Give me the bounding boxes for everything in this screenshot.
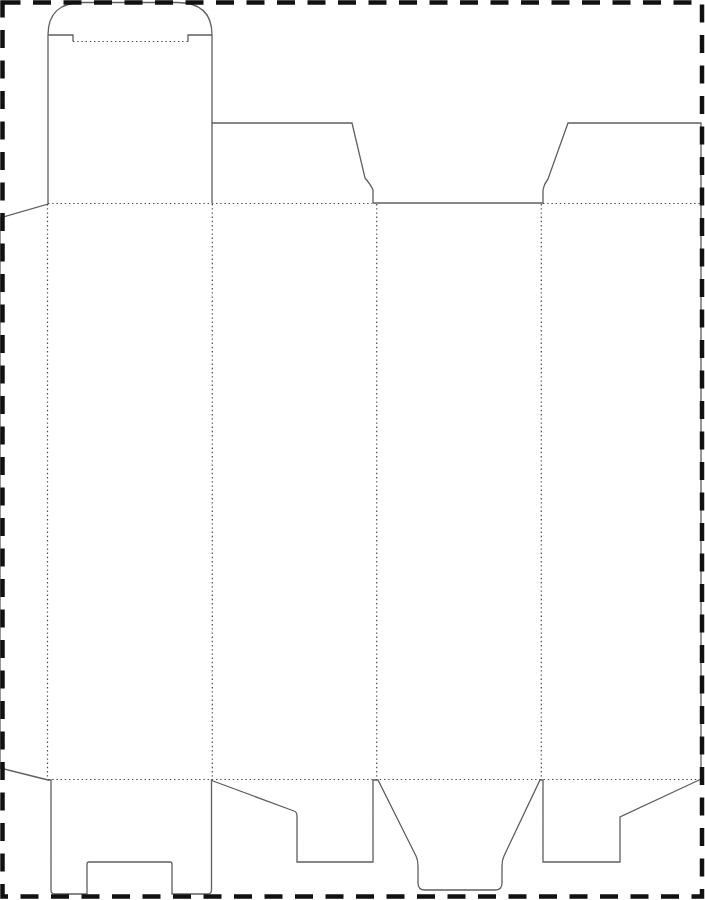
tongue-slit-right xyxy=(188,35,212,42)
page-border-group xyxy=(3,3,703,897)
page xyxy=(0,0,705,900)
tongue-slit-left xyxy=(48,35,73,42)
dieline-canvas xyxy=(0,0,705,900)
page-border xyxy=(3,3,703,897)
carton-blank-silhouette xyxy=(0,3,701,895)
fold-lines xyxy=(48,42,701,780)
carton-blank xyxy=(0,3,701,895)
cut-lines xyxy=(48,35,212,203)
